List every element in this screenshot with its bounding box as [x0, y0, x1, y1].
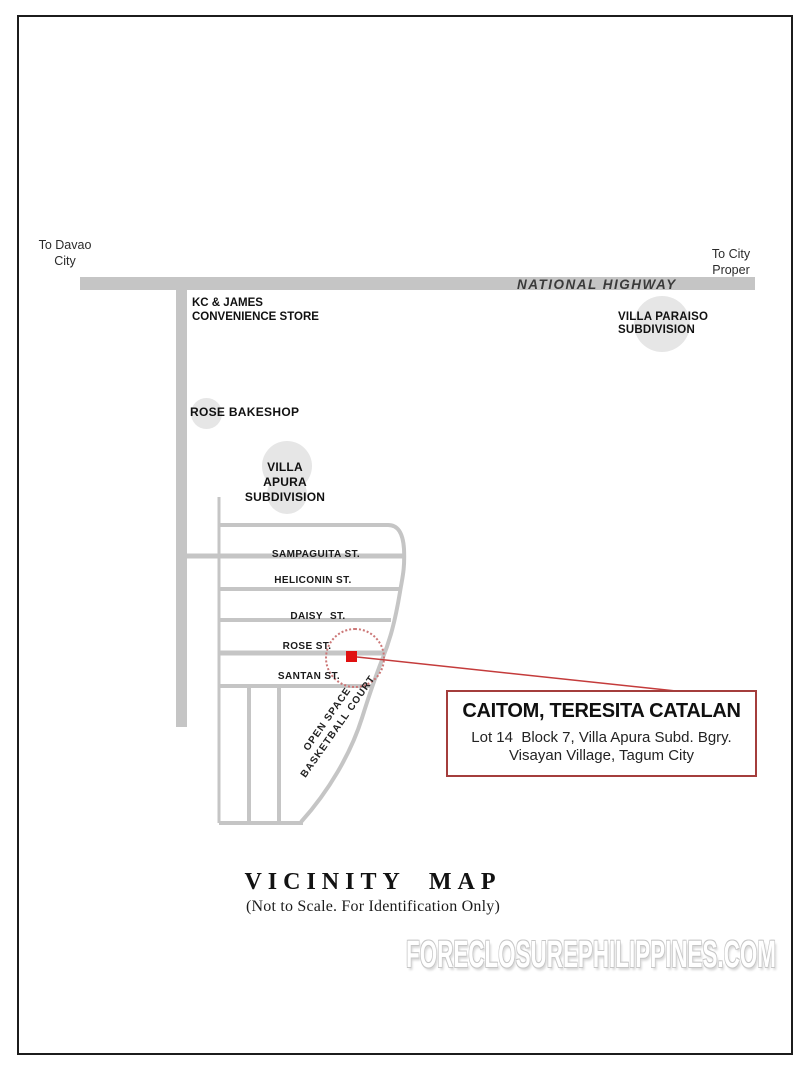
- direction-to-davao-line2: City: [30, 253, 100, 269]
- villa-paraiso-line2: SUBDIVISION: [618, 324, 708, 337]
- street-label-santan: SANTAN ST.: [278, 671, 340, 682]
- street-label-heliconin: HELICONIN ST.: [274, 575, 351, 586]
- villa-paraiso-line1: VILLA PARAISO: [618, 311, 708, 324]
- direction-to-city-line2: Proper: [698, 262, 764, 278]
- villa-paraiso-label: VILLA PARAISO SUBDIVISION: [618, 311, 708, 337]
- map-title: VICINITY MAP: [123, 869, 623, 896]
- property-address-line1: Lot 14 Block 7, Villa Apura Subd. Bgry.: [448, 729, 755, 747]
- map-title-block: VICINITY MAP (Not to Scale. For Identifi…: [123, 869, 623, 916]
- direction-to-davao-line1: To Davao: [30, 237, 100, 253]
- convenience-store-label: KC & JAMES CONVENIENCE STORE: [192, 296, 319, 324]
- callout-leader-line: [357, 657, 676, 691]
- convenience-store-line2: CONVENIENCE STORE: [192, 310, 319, 324]
- direction-to-davao: To Davao City: [30, 237, 100, 269]
- street-label-rose: ROSE ST.: [283, 641, 332, 652]
- main-access-road: [176, 290, 187, 727]
- direction-to-city-line1: To City: [698, 246, 764, 262]
- direction-to-city-proper: To City Proper: [698, 246, 764, 278]
- street-label-daisy: DAISY ST.: [290, 611, 345, 622]
- street-label-sampaguita: SAMPAGUITA ST.: [272, 549, 360, 560]
- property-address-line2: Visayan Village, Tagum City: [448, 747, 755, 765]
- convenience-store-line1: KC & JAMES: [192, 296, 319, 310]
- national-highway-label: NATIONAL HIGHWAY: [517, 277, 677, 292]
- villa-apura-line1: VILLA APURA: [243, 460, 327, 490]
- map-subtitle: (Not to Scale. For Identification Only): [123, 898, 623, 916]
- property-callout-box: CAITOM, TERESITA CATALAN Lot 14 Block 7,…: [446, 690, 757, 777]
- villa-apura-label: VILLA APURA SUBDIVISION: [243, 460, 327, 505]
- villa-apura-line2: SUBDIVISION: [243, 490, 327, 505]
- target-location-marker: [346, 651, 357, 662]
- watermark-text: FORECLOSUREPHILIPPINES.COM: [406, 934, 776, 977]
- vicinity-map-page: To Davao City To City Proper NATIONAL HI…: [0, 0, 800, 1067]
- property-owner-name: CAITOM, TERESITA CATALAN: [448, 700, 755, 723]
- rose-bakeshop-label: ROSE BAKESHOP: [190, 405, 299, 419]
